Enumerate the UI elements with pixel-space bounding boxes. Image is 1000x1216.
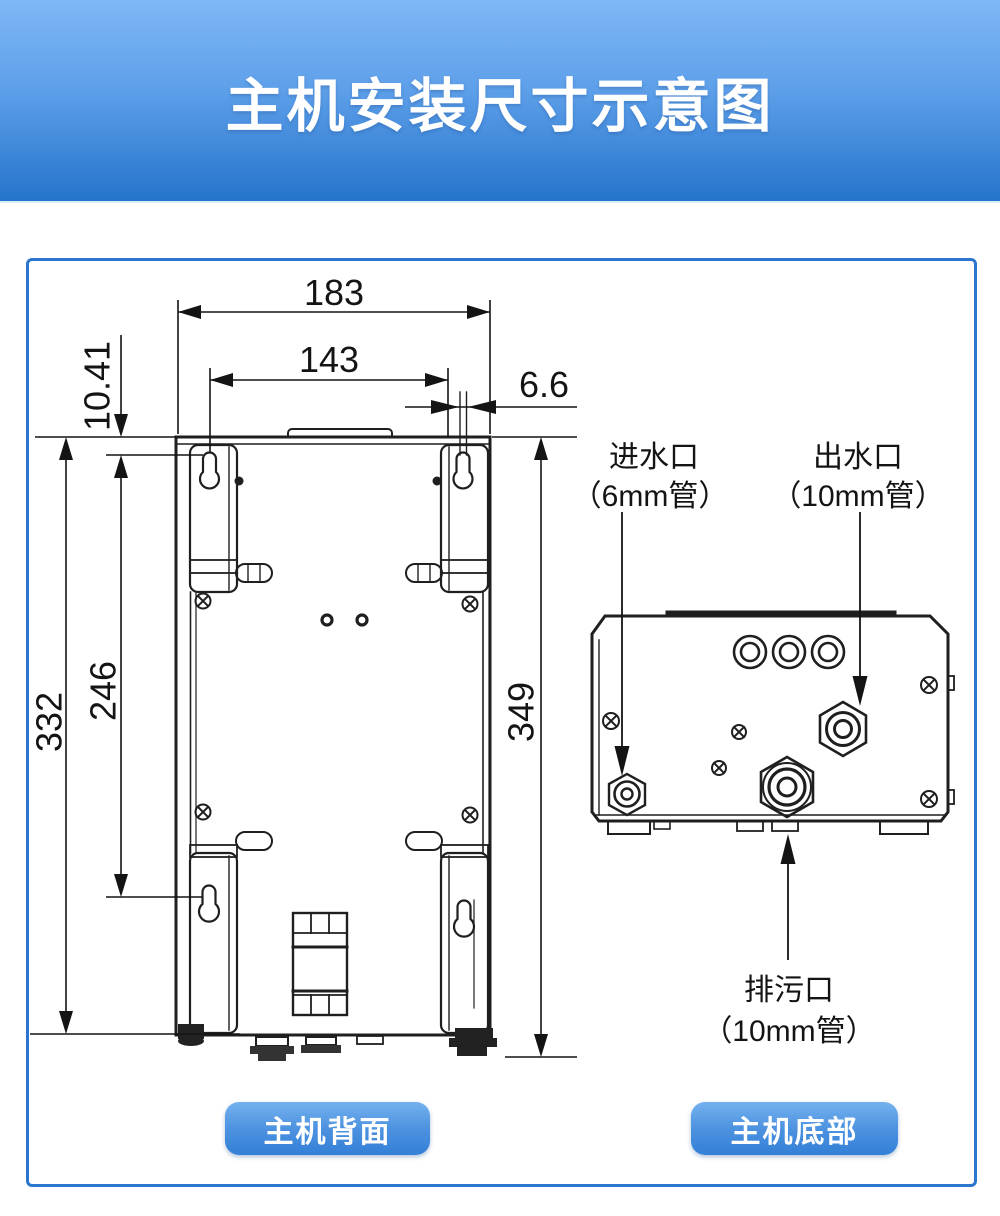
back-view-drawing bbox=[176, 392, 497, 1061]
dim-hole-span: 143 bbox=[299, 339, 359, 380]
installation-diagram: 183 143 6.6 10.41 332 246 349 bbox=[0, 0, 1000, 1216]
inlet-leader bbox=[615, 512, 630, 776]
bottom-view-caption-label: 主机底部 bbox=[731, 1107, 859, 1151]
vent-holes bbox=[734, 636, 844, 668]
drain-leader bbox=[781, 834, 796, 960]
bottom-view-drawing bbox=[592, 613, 954, 834]
inlet-pipe-label: （6mm管） bbox=[572, 480, 729, 513]
outlet-label: 出水口 bbox=[813, 441, 903, 474]
outlet-pipe-label: （10mm管） bbox=[771, 480, 944, 513]
dim-overall-height-lines bbox=[492, 437, 577, 1057]
outlet-fitting bbox=[820, 702, 866, 756]
back-view-caption-label: 主机背面 bbox=[264, 1107, 392, 1151]
back-view-caption: 主机背面 bbox=[225, 1102, 430, 1155]
dim-overall-height: 349 bbox=[501, 682, 542, 742]
dim-stem-offset: 6.6 bbox=[519, 364, 569, 405]
drain-fitting bbox=[761, 757, 813, 817]
inlet-label: 进水口 bbox=[609, 441, 699, 474]
dim-outer-width: 183 bbox=[304, 272, 364, 313]
bottom-view-caption: 主机底部 bbox=[691, 1102, 898, 1155]
dim-hole-vspan: 246 bbox=[83, 661, 124, 721]
port-labels: 进水口 （6mm管） 出水口 （10mm管） 排污口 （10mm管） bbox=[572, 441, 945, 1048]
drain-pipe-label: （10mm管） bbox=[702, 1015, 875, 1048]
inlet-fitting bbox=[609, 774, 645, 815]
screw-hole bbox=[433, 477, 442, 486]
dim-hole-top-offset: 10.41 bbox=[77, 341, 118, 431]
drain-label: 排污口 bbox=[744, 974, 834, 1007]
unit-body-outline bbox=[176, 429, 490, 1035]
outlet-leader bbox=[853, 512, 868, 706]
dim-body-height: 332 bbox=[29, 692, 70, 752]
screw-hole bbox=[235, 477, 244, 486]
